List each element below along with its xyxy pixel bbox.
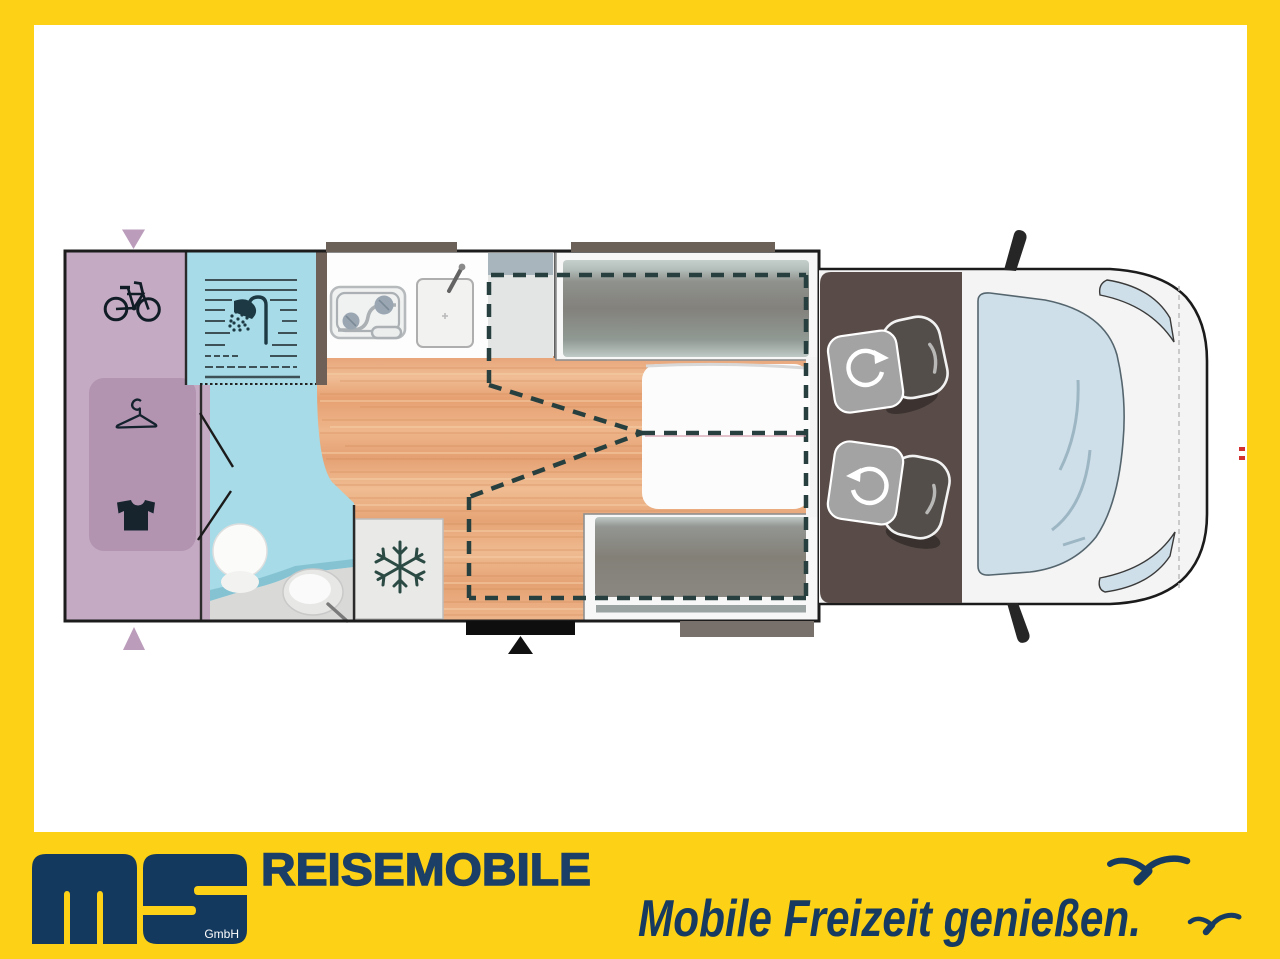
svg-text:REISEMOBILE: REISEMOBILE [261,844,591,895]
svg-text:Mobile Freizeit genießen.: Mobile Freizeit genießen. [638,890,1141,948]
svg-text:GmbH: GmbH [204,927,239,941]
